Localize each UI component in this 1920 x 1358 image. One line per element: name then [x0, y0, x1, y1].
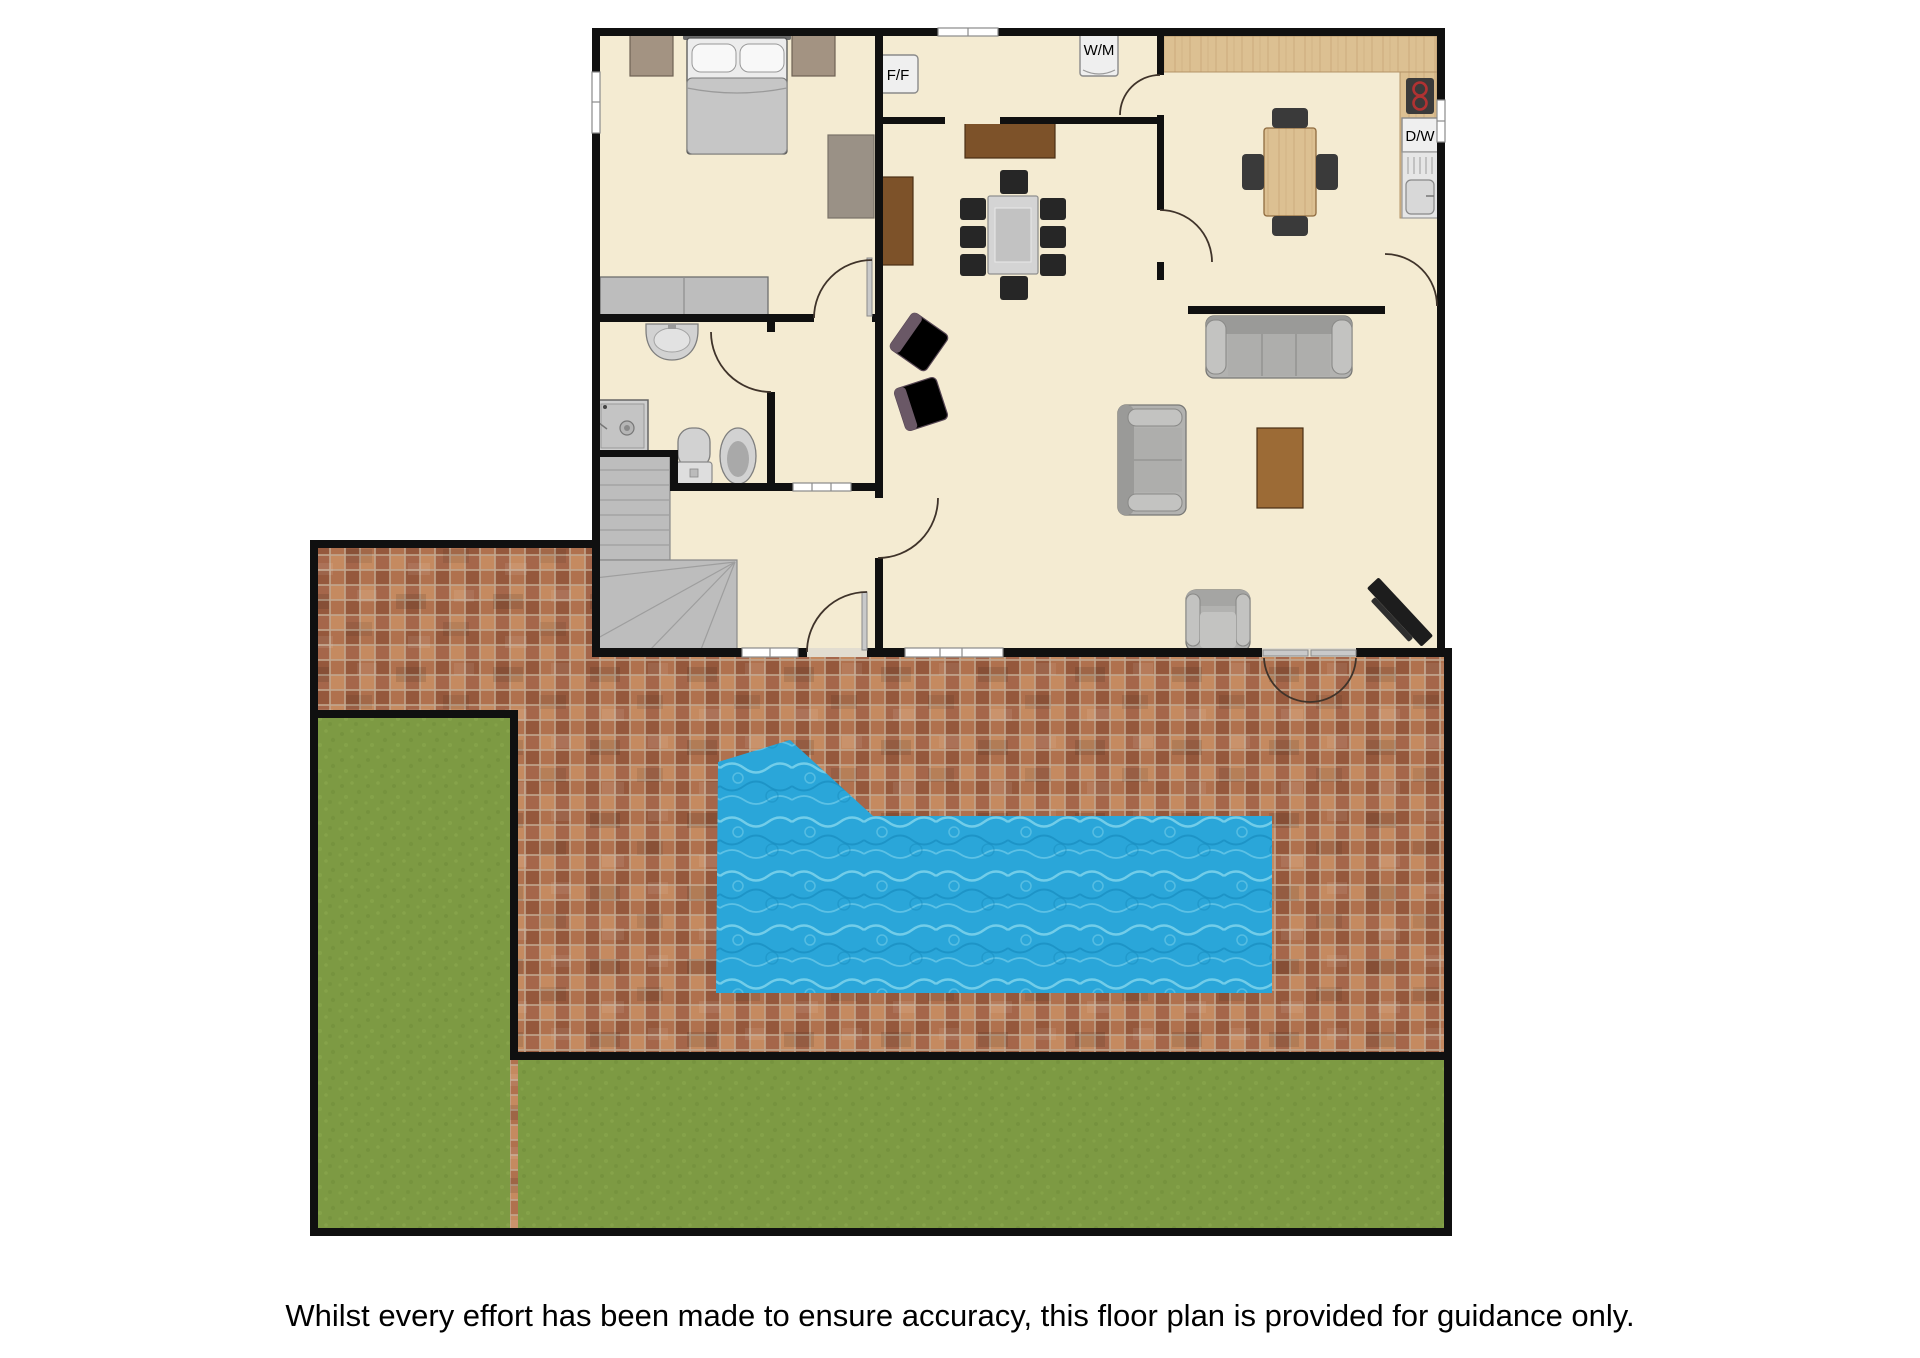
floor-plan-drawing: F/F W/M D/W — [0, 0, 1920, 1358]
dining-chair — [1040, 198, 1066, 220]
basin-bowl — [654, 328, 690, 352]
wall-hall-living — [875, 322, 883, 657]
dining-chair — [1000, 170, 1028, 194]
window-bedroom-left — [592, 72, 600, 133]
fridge-freezer-label: F/F — [887, 67, 910, 84]
kitchen-chair-right — [1316, 154, 1338, 190]
bedside-table-left — [630, 34, 673, 76]
bedroom-door-leaf — [867, 258, 872, 316]
lawn-border-right — [510, 710, 518, 1060]
lawn-left — [318, 718, 510, 1228]
tall-cabinet — [880, 177, 913, 265]
pillow-right — [740, 44, 784, 72]
dishwasher-label: D/W — [1405, 128, 1435, 145]
kitchen-chair-left — [1242, 154, 1264, 190]
dining-chair — [1000, 276, 1028, 300]
dining-chair — [1040, 254, 1066, 276]
bed-duvet — [687, 78, 787, 154]
sofa-horizontal — [1206, 316, 1352, 378]
patio-door-left-leaf — [1263, 650, 1308, 656]
toilet — [676, 428, 712, 484]
bidet — [720, 428, 756, 484]
dining-chair — [1040, 226, 1066, 248]
window-utility-top — [938, 28, 998, 36]
floor-plan-page: F/F W/M D/W — [0, 0, 1920, 1358]
sofa-vertical — [1118, 405, 1186, 515]
kitchen-chair-top — [1272, 108, 1308, 128]
lawn-border-top — [318, 710, 518, 718]
front-door-leaf — [862, 592, 867, 650]
window-living-bottom — [905, 648, 1003, 657]
dining-chair — [960, 226, 986, 248]
kitchen-counter-top — [1163, 36, 1437, 72]
bedroom-rug — [828, 135, 874, 218]
boundary-right — [1444, 648, 1452, 1236]
boundary-left — [310, 540, 318, 1236]
kitchen-chair-bottom — [1272, 216, 1308, 236]
dining-chair — [960, 254, 986, 276]
boundary-bottom — [310, 1228, 1452, 1236]
wall-utility-bottom — [883, 117, 1163, 124]
lawn-border-bottom-band — [510, 1052, 1444, 1060]
patio-door-right-leaf — [1311, 650, 1356, 656]
washing-machine-label: W/M — [1084, 42, 1115, 59]
boundary-top — [310, 540, 600, 548]
armchair — [1186, 590, 1250, 652]
wall-bedroom-right — [875, 28, 883, 322]
house: F/F W/M D/W — [592, 28, 1445, 702]
disclaimer-text: Whilst every effort has been made to ens… — [285, 1298, 1634, 1333]
wall-hall-bottom — [675, 483, 883, 491]
wall-house-top — [592, 28, 1445, 36]
wall-bathroom-stairwell — [592, 450, 678, 457]
window-kitchen-right — [1437, 100, 1445, 142]
basin-tap — [668, 324, 676, 329]
lawn-bottom — [518, 1060, 1444, 1228]
window-hall-internal — [793, 483, 851, 491]
shower — [597, 400, 648, 452]
sink-basin — [1406, 180, 1434, 214]
kitchen-table — [1264, 128, 1316, 216]
bedside-table-right — [792, 34, 835, 76]
dining-chair — [960, 198, 986, 220]
window-hall-bottom — [742, 648, 798, 657]
coffee-table — [1257, 428, 1303, 508]
dining-table-top — [995, 208, 1031, 262]
sideboard — [965, 123, 1055, 158]
pillow-left — [692, 44, 736, 72]
